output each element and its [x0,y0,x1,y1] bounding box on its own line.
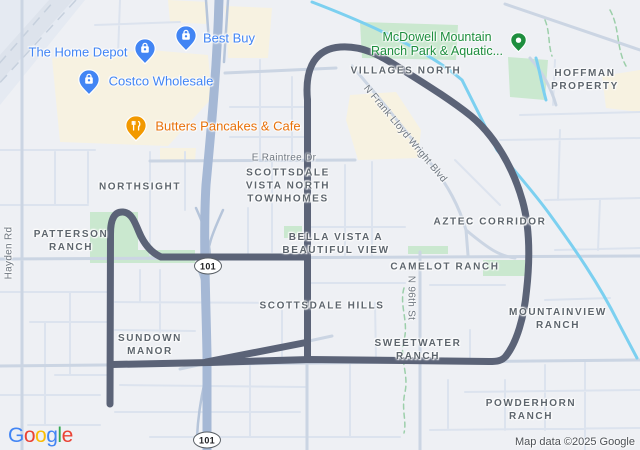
logo-letter: G [8,424,24,448]
park-pin-icon[interactable] [510,32,527,53]
map-canvas[interactable]: 101 101 The Home Depot Best Buy Costco W… [0,0,640,450]
restaurant-pin-icon[interactable] [125,115,147,142]
logo-letter: e [62,424,73,448]
poi-label-line: McDowell Mountain [371,30,503,44]
shopping-pin-icon[interactable] [78,69,100,96]
shopping-pin-icon[interactable] [134,38,156,65]
poi-label-line: Ranch Park & Aquatic... [371,44,503,58]
google-logo[interactable]: Google [8,424,73,448]
highway-shield-101: 101 [194,258,222,275]
poi-label-mcdowell-park[interactable]: McDowell Mountain Ranch Park & Aquatic..… [371,30,503,58]
poi-label-the-home-depot[interactable]: The Home Depot [29,45,128,60]
map-attribution: Map data ©2025 Google [515,436,635,448]
logo-letter: o [35,424,46,448]
poi-label-best-buy[interactable]: Best Buy [203,31,255,46]
highway-shield-101: 101 [193,432,221,449]
logo-letter: o [24,424,35,448]
poi-label-costco-wholesale[interactable]: Costco Wholesale [109,74,214,89]
basemap-svg [0,0,640,450]
poi-label-butters-pancakes-cafe[interactable]: Butters Pancakes & Cafe [155,119,300,134]
shopping-pin-icon[interactable] [175,25,197,52]
logo-letter: g [46,424,57,448]
